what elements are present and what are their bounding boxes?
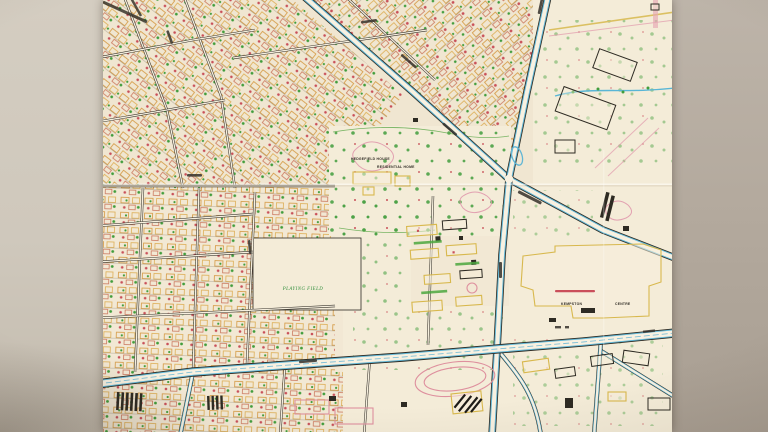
playing-field-label: PLAYING FIELD <box>282 287 324 292</box>
table-surface-right <box>672 0 768 432</box>
junction <box>505 175 513 183</box>
map-drawing: HEDGEFIELD HOUSE RESIDENTIAL HOME KEMPST… <box>103 0 672 432</box>
playing-field <box>253 238 361 310</box>
residential-home-label: RESIDENTIAL HOME <box>377 165 415 169</box>
photo-of-map: HEDGEFIELD HOUSE RESIDENTIAL HOME KEMPST… <box>0 0 768 432</box>
kempston-label: KEMPSTON <box>561 302 582 306</box>
small-red-caption <box>555 290 595 292</box>
hatched-building <box>451 391 483 414</box>
paper-map: HEDGEFIELD HOUSE RESIDENTIAL HOME KEMPST… <box>103 0 672 432</box>
hedgefield-house-label: HEDGEFIELD HOUSE <box>351 157 390 161</box>
table-surface-left <box>0 0 103 432</box>
centre-label: CENTRE <box>615 302 631 306</box>
